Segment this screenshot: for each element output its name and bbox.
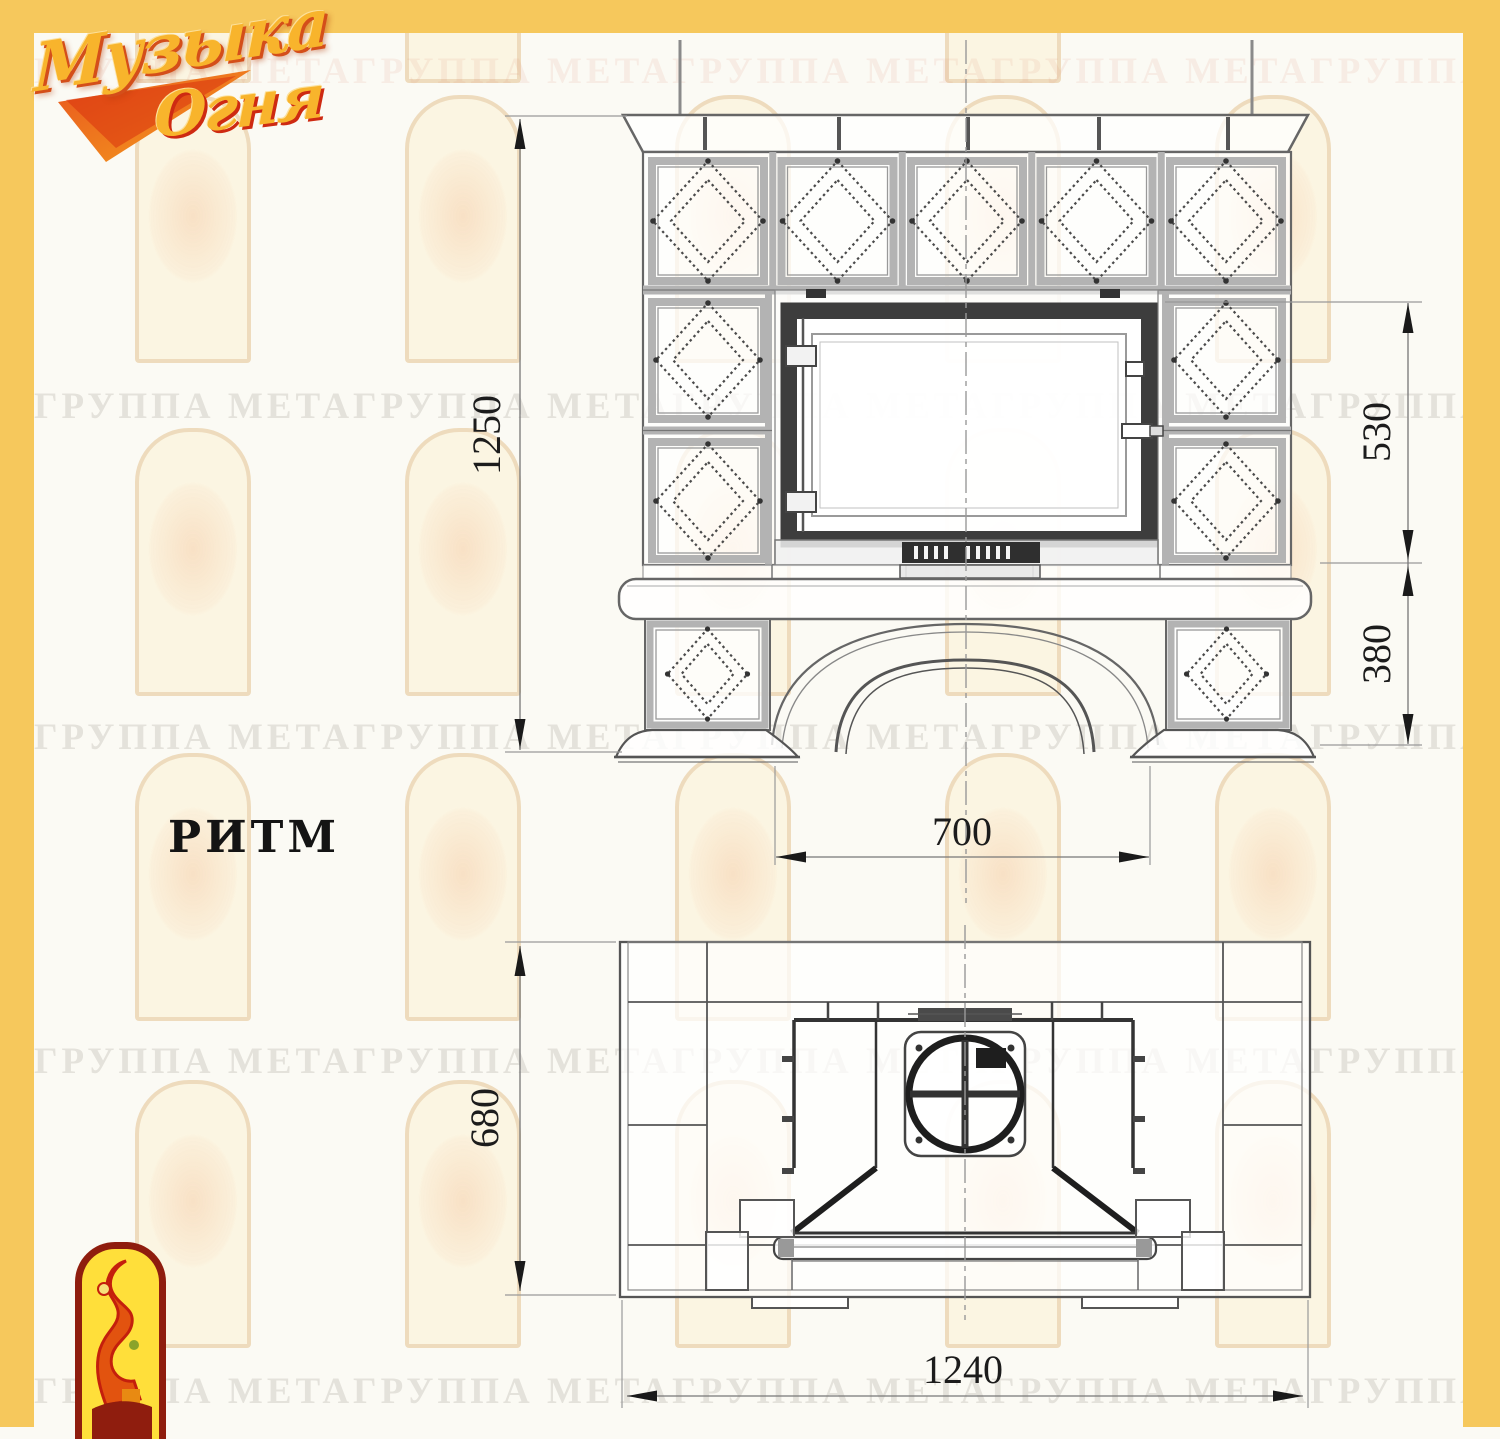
- vent-grille: [902, 542, 1040, 563]
- dim-firebox-height: 530: [1354, 402, 1399, 462]
- dim-opening-width: 700: [932, 809, 992, 854]
- plan-view: [620, 925, 1310, 1320]
- arch-opening: [772, 624, 1158, 754]
- brand-logo: Музыка Огня: [6, 0, 336, 185]
- fire-emblem-figure: [82, 1249, 159, 1439]
- model-name-label: РИТМ: [168, 812, 340, 863]
- door-handle: [1122, 424, 1152, 438]
- front-view: [614, 40, 1316, 903]
- mantel-shelf: [619, 579, 1311, 619]
- base-pillars: [645, 619, 1291, 730]
- dim-base-height: 380: [1354, 624, 1399, 684]
- dim-depth: 680: [462, 1088, 507, 1148]
- base-feet: [614, 730, 1316, 762]
- door-hinge-top: [786, 346, 816, 366]
- stove-door: [775, 289, 1163, 565]
- dim-overall-height: 1250: [464, 395, 509, 475]
- dim-overall-width: 1240: [923, 1347, 1003, 1392]
- door-hinge-bottom: [786, 492, 816, 512]
- fireplace-technical-drawing: 1250 530 380 700: [0, 0, 1500, 1427]
- fire-emblem: [75, 1242, 166, 1439]
